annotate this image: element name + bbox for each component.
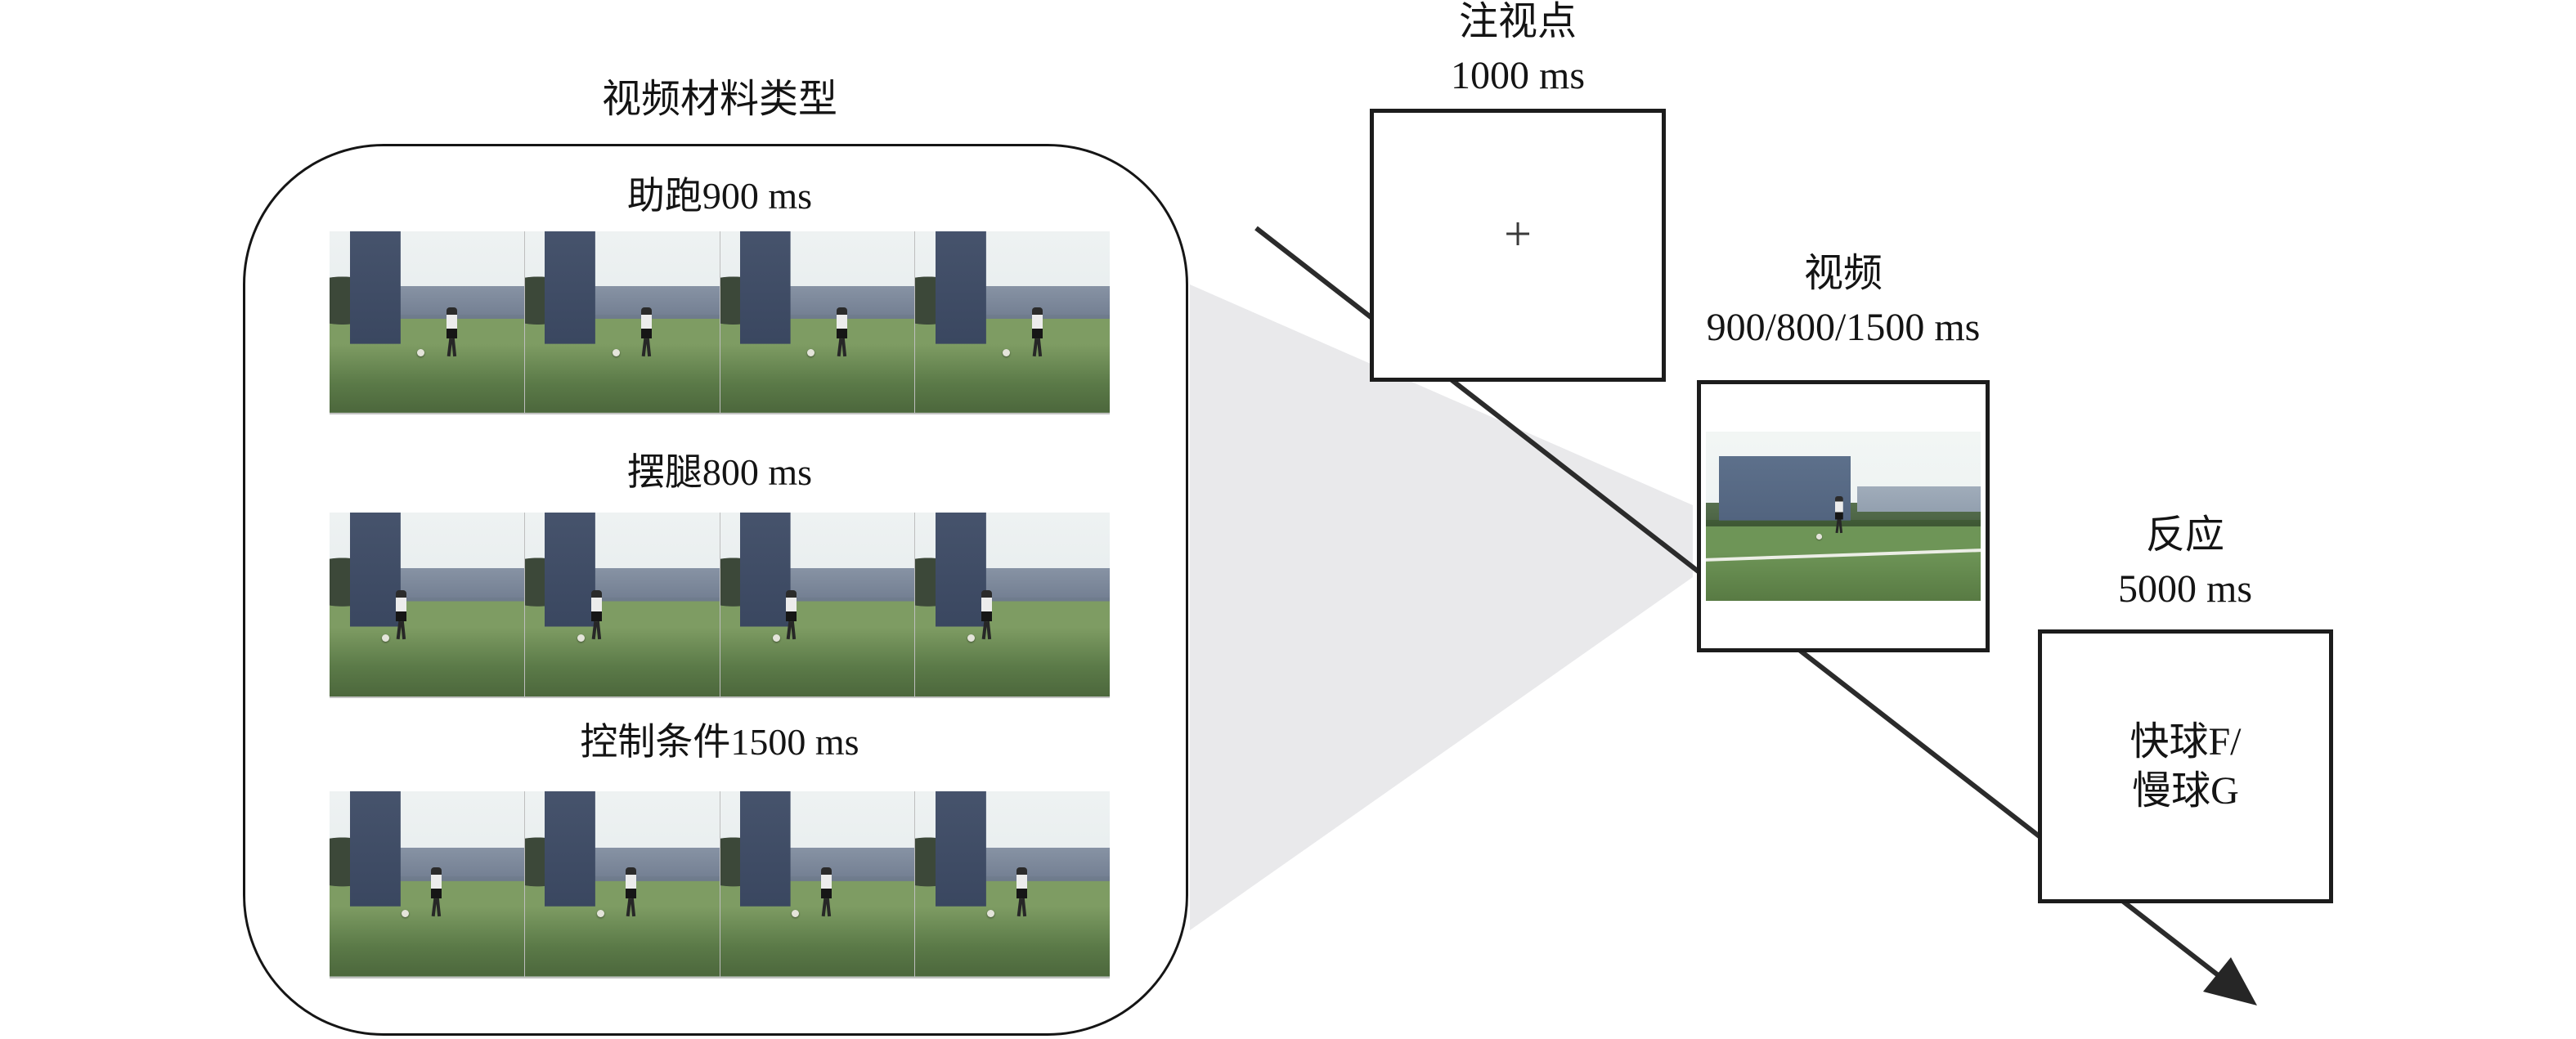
video-label: 视频 900/800/1500 ms <box>1659 247 2027 355</box>
soccer-ball-dot <box>577 634 585 642</box>
video-frame <box>720 513 915 696</box>
response-title: 反应 <box>2022 508 2349 562</box>
fixation-cross: + <box>1504 206 1532 262</box>
frame-photo <box>330 791 524 977</box>
soccer-player-figure <box>837 307 847 338</box>
video-frame <box>330 231 524 413</box>
response-duration: 5000 ms <box>2022 562 2349 616</box>
frame-photo <box>525 513 720 696</box>
video-frame <box>524 791 720 977</box>
frame-photo <box>525 791 720 977</box>
field-line <box>1706 549 1981 562</box>
soccer-player-figure <box>591 590 602 621</box>
soccer-ball-dot <box>597 910 604 917</box>
frame-photo <box>525 231 720 413</box>
soccer-player-figure <box>1016 867 1027 898</box>
frame-photo <box>330 513 524 696</box>
arrowhead-icon <box>2203 957 2257 1005</box>
video-frame <box>524 513 720 696</box>
soccer-player-figure <box>396 590 406 621</box>
video-frame <box>330 791 524 977</box>
frame-photo <box>720 791 915 977</box>
response-option-fast: 快球F/ <box>2129 718 2241 767</box>
soccer-ball-dot <box>1816 534 1822 540</box>
soccer-ball-dot <box>967 634 975 642</box>
frame-photo <box>915 231 1110 413</box>
video-frame <box>914 791 1110 977</box>
fixation-box: + <box>1370 109 1666 382</box>
soccer-ball-dot <box>613 349 620 356</box>
frame-photo <box>915 513 1110 696</box>
soccer-player-figure <box>447 307 457 338</box>
video-frame <box>330 513 524 696</box>
video-title: 视频 <box>1659 247 2027 301</box>
soccer-player-figure <box>641 307 652 338</box>
fixation-title: 注视点 <box>1354 0 1681 49</box>
video-photo <box>1706 432 1981 601</box>
soccer-player-figure <box>1835 496 1843 520</box>
frame-photo <box>915 791 1110 977</box>
condition-label-control: 控制条件1500 ms <box>330 721 1110 764</box>
film-strip-legswing <box>330 513 1110 698</box>
video-frame <box>720 231 915 413</box>
video-duration: 900/800/1500 ms <box>1659 301 2027 355</box>
video-frame <box>914 513 1110 696</box>
soccer-player-figure <box>626 867 636 898</box>
soccer-ball-dot <box>382 634 389 642</box>
video-frame <box>914 231 1110 413</box>
video-frame <box>720 791 915 977</box>
soccer-player-figure <box>821 867 832 898</box>
frame-photo <box>720 231 915 413</box>
fixation-label: 注视点 1000 ms <box>1354 0 1681 103</box>
response-label: 反应 5000 ms <box>2022 508 2349 616</box>
condition-label-legswing: 摆腿800 ms <box>330 451 1110 494</box>
soccer-player-figure <box>981 590 992 621</box>
fixation-duration: 1000 ms <box>1354 49 1681 103</box>
video-frame <box>524 231 720 413</box>
response-option-slow: 慢球G <box>2132 767 2239 816</box>
soccer-ball-dot <box>773 634 780 642</box>
soccer-player-figure <box>431 867 442 898</box>
frame-photo <box>330 231 524 413</box>
paradigm-figure: 视频材料类型 助跑900 ms 摆腿800 ms 控制条件1500 ms 注视点… <box>0 0 2576 1039</box>
panel-title: 视频材料类型 <box>330 78 1110 121</box>
soccer-player-figure <box>786 590 797 621</box>
soccer-player-figure <box>1032 307 1043 338</box>
response-box: 快球F/ 慢球G <box>2038 629 2333 903</box>
film-strip-control <box>330 791 1110 979</box>
film-strip-runup <box>330 231 1110 414</box>
condition-label-runup: 助跑900 ms <box>330 175 1110 217</box>
video-box <box>1697 380 1990 652</box>
frame-photo <box>720 513 915 696</box>
